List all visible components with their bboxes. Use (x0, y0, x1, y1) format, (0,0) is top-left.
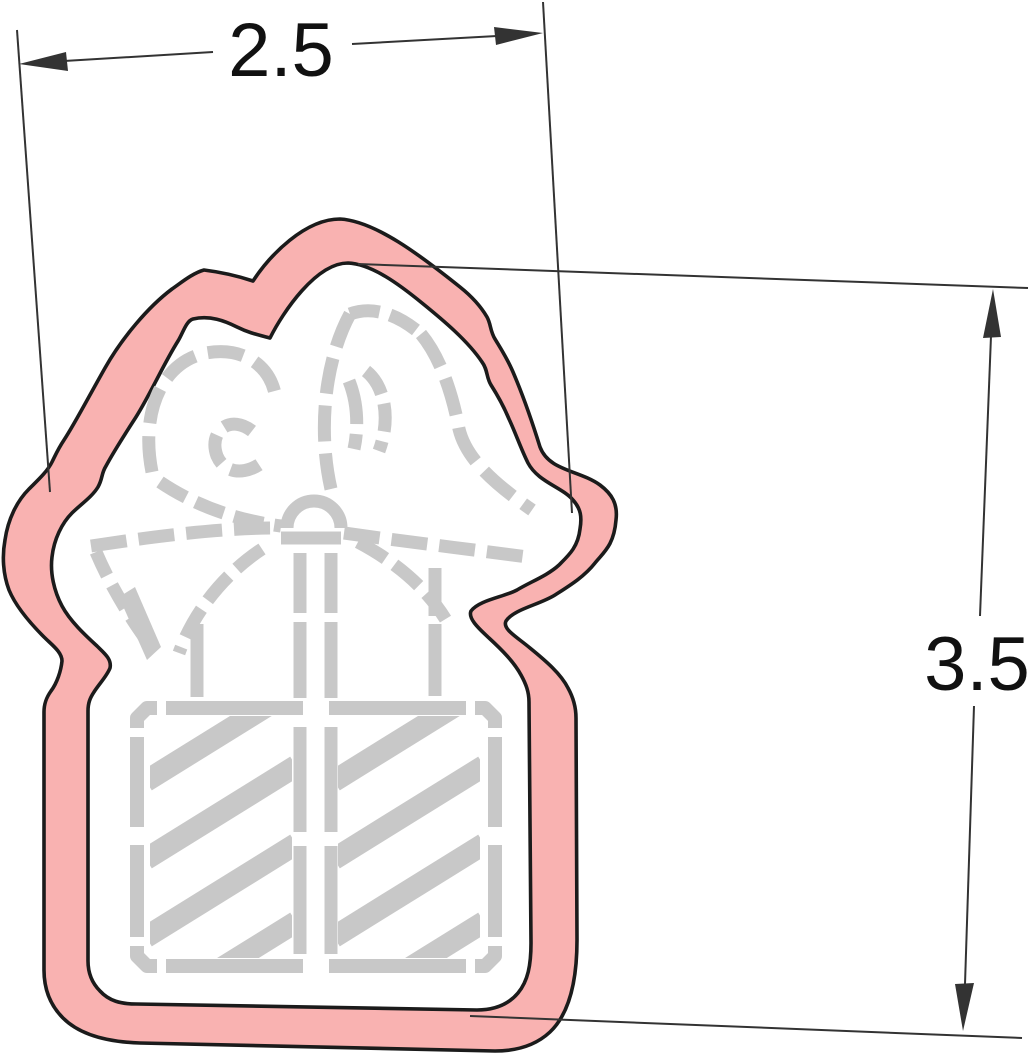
width-arrow-right-icon (494, 27, 543, 45)
width-dim-line-right (352, 36, 497, 44)
extension-line-right (543, 2, 572, 513)
height-arrow-up-icon (983, 289, 1001, 338)
bow-right-loop-slash (349, 381, 357, 449)
width-dim-line-left (64, 52, 213, 61)
width-dimension-label: 2.5 (228, 8, 334, 93)
dimension-diagram: 2.5 3.5 (0, 0, 1030, 1057)
width-arrow-left-icon (19, 52, 68, 71)
height-dim-line-bottom (965, 706, 974, 984)
height-dimension-label: 3.5 (924, 622, 1030, 707)
height-dim-line-top (980, 336, 991, 616)
extension-line-left (17, 30, 50, 492)
technical-drawing-canvas: 2.5 3.5 (0, 0, 1030, 1057)
cookie-cutter (3, 219, 616, 1051)
height-arrow-down-icon (955, 983, 974, 1031)
